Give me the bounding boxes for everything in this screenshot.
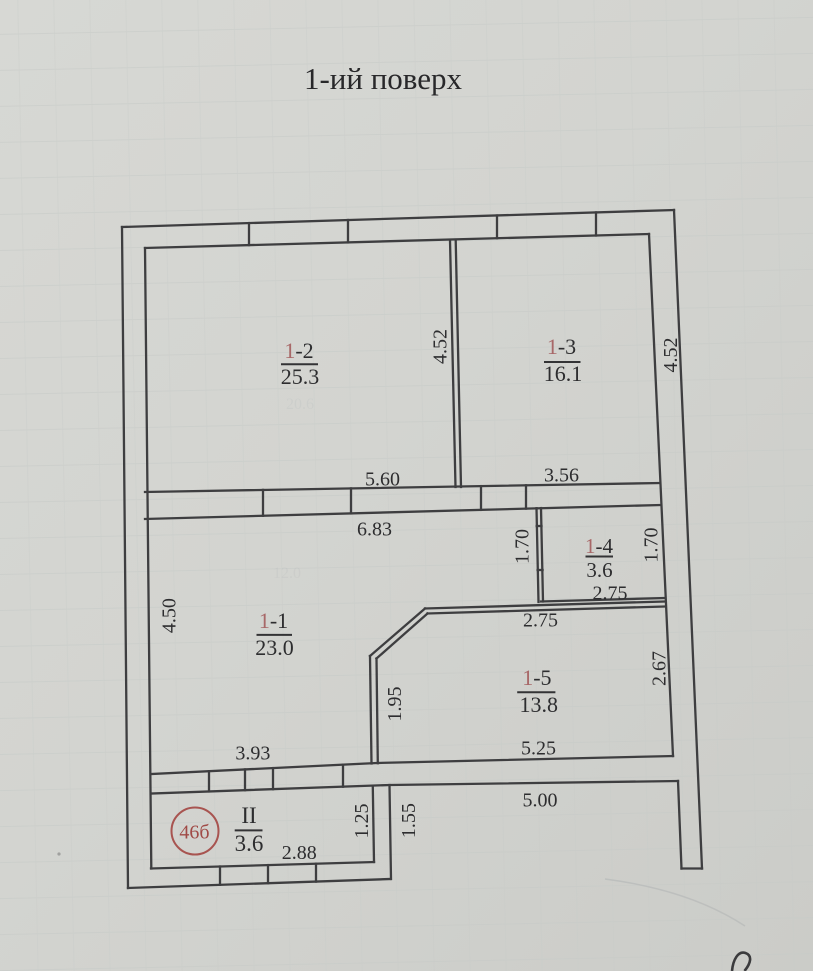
svg-text:1.70: 1.70 (641, 528, 663, 563)
svg-text:5.25: 5.25 (521, 738, 556, 760)
svg-text:16.1: 16.1 (544, 361, 583, 386)
svg-text:1-1: 1-1 (259, 608, 288, 633)
svg-text:1-2: 1-2 (284, 338, 313, 363)
svg-text:1.25: 1.25 (351, 804, 373, 839)
svg-text:2.67: 2.67 (649, 651, 671, 686)
svg-text:3.56: 3.56 (544, 465, 579, 487)
svg-text:2.88: 2.88 (282, 842, 317, 864)
svg-text:46б: 46б (179, 822, 209, 844)
svg-text:25.3: 25.3 (281, 364, 320, 389)
svg-text:1.95: 1.95 (384, 687, 406, 722)
svg-text:5.60: 5.60 (365, 468, 400, 490)
svg-text:3.6: 3.6 (235, 831, 264, 856)
svg-text:1-ий поверх: 1-ий поверх (304, 61, 463, 96)
svg-text:II: II (241, 803, 256, 828)
svg-text:1-3: 1-3 (547, 334, 576, 359)
svg-text:5.00: 5.00 (523, 790, 558, 812)
svg-text:3.93: 3.93 (235, 743, 270, 765)
svg-text:1.55: 1.55 (398, 803, 420, 838)
svg-text:1-5: 1-5 (522, 665, 551, 690)
svg-text:4.52: 4.52 (429, 329, 451, 364)
svg-text:20.6: 20.6 (286, 396, 314, 413)
svg-text:6.83: 6.83 (357, 519, 392, 541)
svg-text:1.70: 1.70 (512, 529, 534, 564)
svg-text:3.6: 3.6 (586, 558, 612, 582)
svg-text:2.75: 2.75 (523, 610, 558, 632)
svg-text:4.50: 4.50 (159, 598, 181, 633)
svg-text:1-4: 1-4 (585, 534, 613, 558)
svg-text:4.52: 4.52 (660, 338, 682, 373)
svg-text:2.75: 2.75 (593, 583, 628, 605)
svg-text:12.0: 12.0 (273, 565, 301, 582)
svg-text:23.0: 23.0 (255, 635, 294, 660)
svg-text:13.8: 13.8 (519, 692, 558, 717)
